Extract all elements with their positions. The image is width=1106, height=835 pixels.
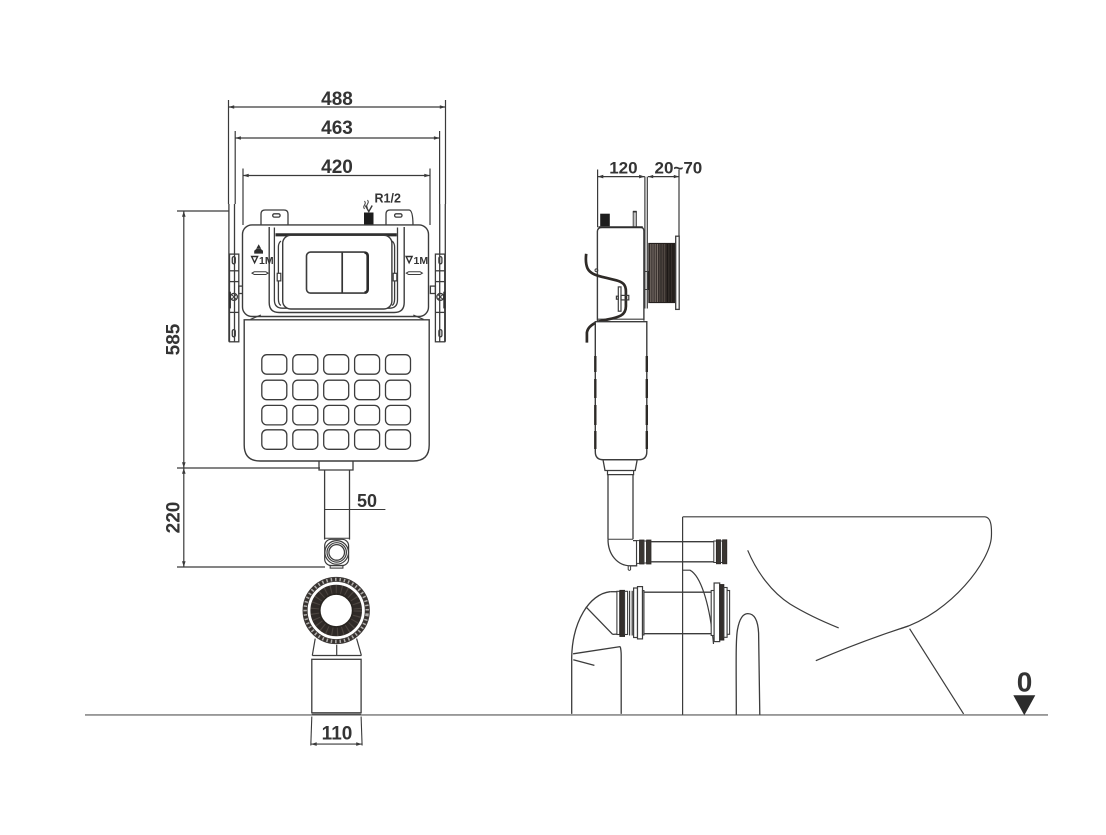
- svg-text:488: 488: [321, 89, 353, 110]
- svg-text:R1/2: R1/2: [375, 192, 401, 206]
- svg-text:1M: 1M: [259, 255, 274, 267]
- svg-text:220: 220: [164, 502, 185, 534]
- svg-text:50: 50: [357, 491, 377, 511]
- svg-text:463: 463: [321, 118, 353, 139]
- svg-text:1M: 1M: [414, 255, 429, 267]
- svg-text:120: 120: [609, 158, 637, 177]
- svg-text:0: 0: [1017, 667, 1033, 698]
- svg-text:110: 110: [322, 724, 353, 745]
- svg-text:20~70: 20~70: [655, 158, 703, 177]
- svg-text:585: 585: [164, 323, 185, 355]
- svg-text:420: 420: [321, 157, 353, 178]
